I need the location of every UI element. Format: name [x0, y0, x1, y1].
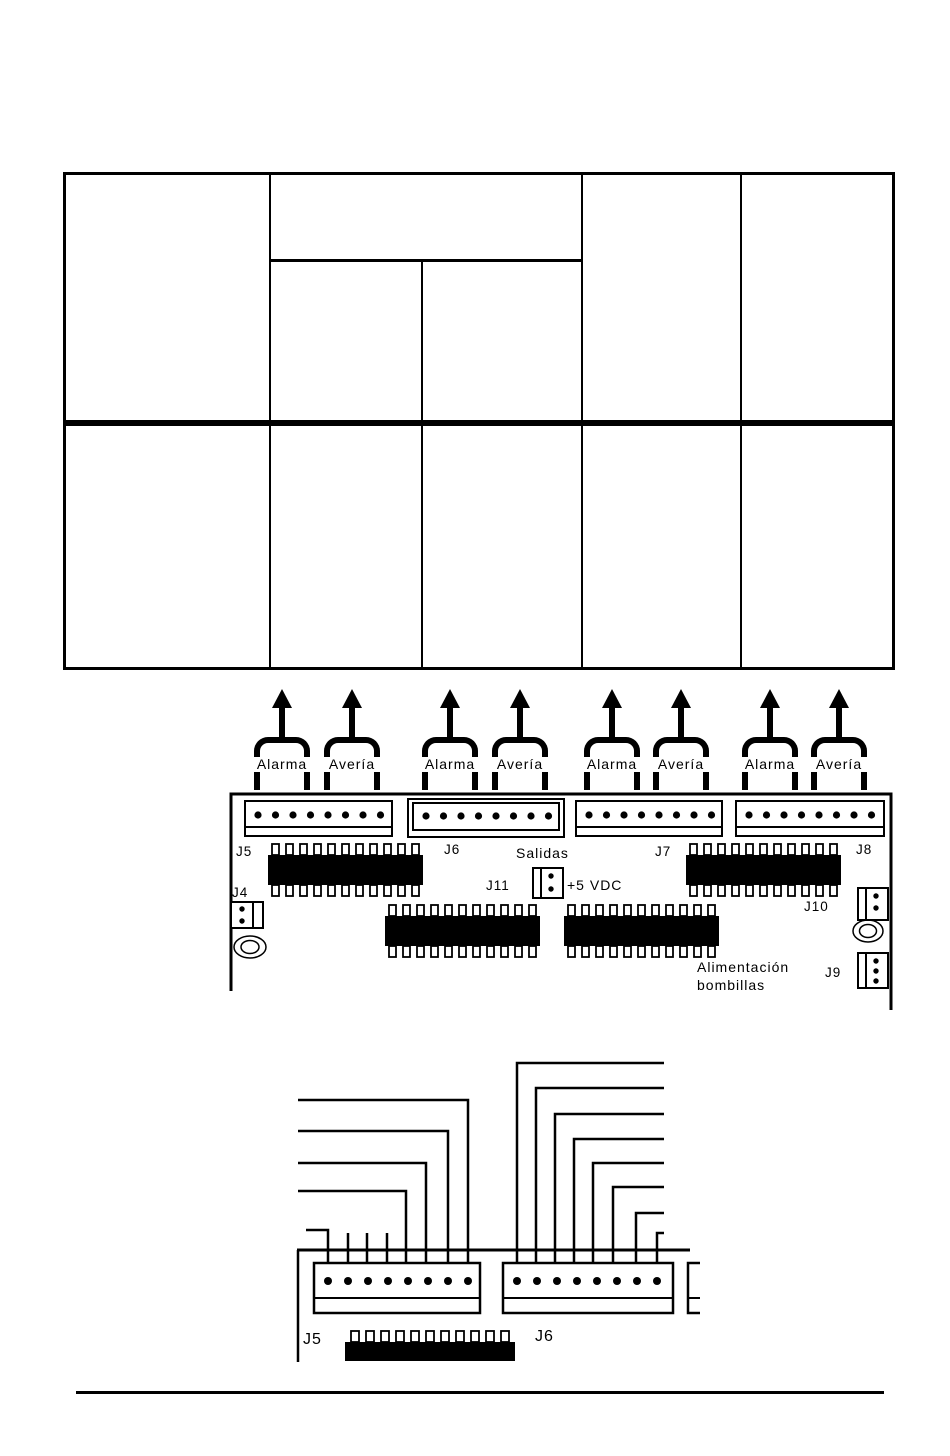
label-alimentacion: Alimentación [697, 959, 789, 975]
connector-j11 [533, 868, 563, 898]
wiring-detail-figure: J5 J6 [0, 1040, 950, 1380]
label-j6-detail: J6 [535, 1328, 554, 1345]
ic-chip [385, 905, 540, 957]
output-board-figure: J5 J6 Salidas J7 J8 J4 J11 +5 VDC J10 Al… [0, 680, 950, 1020]
table-header-divider [269, 259, 583, 262]
label-j8: J8 [856, 842, 872, 857]
connector-j5 [245, 801, 392, 836]
connector-j4 [231, 902, 263, 928]
ic-chip [345, 1331, 515, 1361]
connector-j5-detail [314, 1263, 480, 1313]
connector-partial [688, 1263, 700, 1313]
connector-j6 [408, 799, 564, 837]
connector-j8 [736, 801, 884, 836]
label-j5: J5 [236, 844, 252, 859]
ic-chip [564, 905, 719, 957]
label-salidas: Salidas [516, 845, 569, 861]
table-row-divider [66, 420, 892, 426]
label-j11: J11 [486, 878, 510, 893]
ic-chip [268, 844, 423, 896]
label-j10: J10 [804, 899, 829, 914]
connector-j6-detail [503, 1263, 673, 1313]
label-power: +5 VDC [567, 877, 622, 893]
connector-j10 [858, 888, 888, 920]
connector-j7 [576, 801, 722, 836]
label-bombillas: bombillas [697, 977, 765, 993]
table [63, 172, 895, 670]
label-j4: J4 [232, 885, 248, 900]
footer-rule [76, 1391, 884, 1394]
label-j6: J6 [444, 842, 460, 857]
connector-j9 [858, 953, 888, 988]
label-j5-detail: J5 [303, 1331, 322, 1348]
j6-wires [517, 1063, 664, 1281]
table-subcolumn-divider [421, 261, 423, 667]
ic-chip [686, 844, 841, 896]
j5-wires [298, 1100, 468, 1281]
label-j7: J7 [655, 844, 671, 859]
document-page: Alarma Avería Alarma Avería Alarma [0, 0, 950, 1456]
mounting-hole [853, 920, 883, 942]
label-j9: J9 [825, 965, 841, 980]
mounting-hole [234, 936, 266, 958]
